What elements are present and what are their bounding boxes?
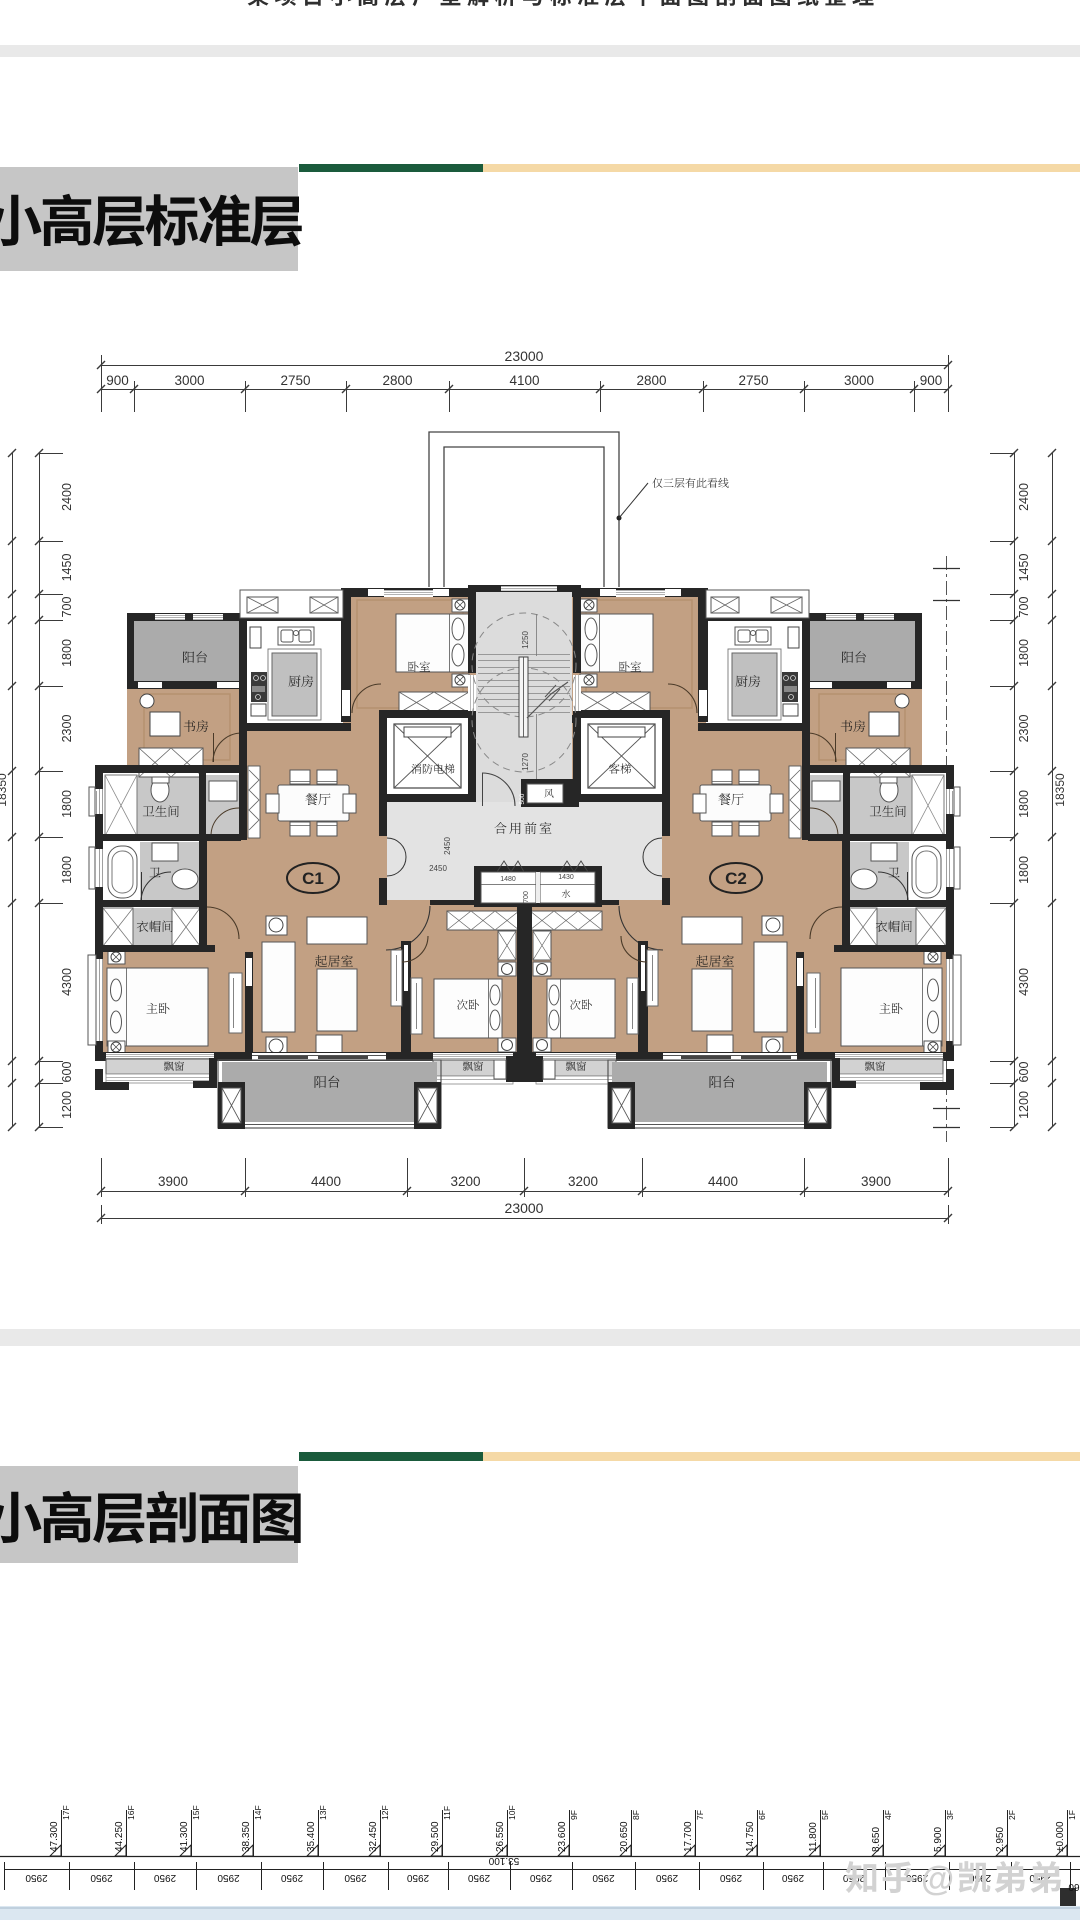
svg-text:47.300: 47.300: [49, 1821, 60, 1852]
svg-text:8.650: 8.650: [871, 1827, 882, 1852]
svg-text:3000: 3000: [174, 373, 204, 388]
svg-text:18350: 18350: [0, 773, 9, 807]
svg-text:2450: 2450: [429, 864, 447, 873]
svg-text:17.700: 17.700: [683, 1821, 694, 1852]
svg-text:2950: 2950: [217, 1872, 240, 1883]
svg-text:2950: 2950: [655, 1872, 678, 1883]
svg-text:38.350: 38.350: [241, 1821, 252, 1852]
svg-text:2450: 2450: [443, 837, 452, 855]
svg-text:29.500: 29.500: [430, 1821, 441, 1852]
svg-text:4F: 4F: [883, 1810, 893, 1820]
svg-text:2.950: 2.950: [995, 1827, 1006, 1852]
svg-text:3200: 3200: [568, 1174, 598, 1189]
svg-text:2950: 2950: [90, 1872, 113, 1883]
svg-text:2950: 2950: [25, 1872, 48, 1883]
svg-text:1430: 1430: [558, 874, 574, 881]
svg-text:2950: 2950: [592, 1872, 615, 1883]
svg-text:2950: 2950: [467, 1872, 490, 1883]
svg-text:41.300: 41.300: [179, 1821, 190, 1852]
svg-text:3000: 3000: [844, 373, 874, 388]
svg-text:2300: 2300: [60, 715, 74, 743]
svg-text:13F: 13F: [318, 1805, 328, 1820]
svg-text:3900: 3900: [861, 1174, 891, 1189]
svg-text:1270: 1270: [521, 753, 530, 771]
svg-text:@: @: [921, 1860, 954, 1898]
svg-text:9F: 9F: [569, 1810, 579, 1820]
svg-text:23000: 23000: [505, 348, 544, 364]
svg-text:26.550: 26.550: [495, 1821, 506, 1852]
svg-text:3200: 3200: [450, 1174, 480, 1189]
svg-text:1450: 1450: [60, 554, 74, 582]
svg-text:32.450: 32.450: [368, 1821, 379, 1852]
svg-text:5F: 5F: [820, 1810, 830, 1820]
svg-text:35.400: 35.400: [306, 1821, 317, 1852]
svg-text:1800: 1800: [1017, 639, 1031, 667]
svg-text:2800: 2800: [382, 373, 412, 388]
svg-text:5.900: 5.900: [933, 1827, 944, 1852]
svg-text:4400: 4400: [708, 1174, 738, 1189]
svg-text:14.750: 14.750: [745, 1821, 756, 1852]
svg-text:44.250: 44.250: [114, 1821, 125, 1852]
svg-text:18350: 18350: [1053, 773, 1067, 807]
svg-text:1450: 1450: [1017, 554, 1031, 582]
svg-text:2950: 2950: [781, 1872, 804, 1883]
svg-text:700: 700: [523, 891, 530, 903]
svg-text:11.800: 11.800: [808, 1822, 819, 1852]
svg-text:1250: 1250: [521, 631, 530, 649]
svg-text:2950: 2950: [280, 1872, 303, 1883]
svg-text:2800: 2800: [636, 373, 666, 388]
svg-text:1800: 1800: [1017, 856, 1031, 884]
svg-text:23000: 23000: [505, 1200, 544, 1216]
svg-text:1800: 1800: [60, 856, 74, 884]
svg-text:2F: 2F: [1007, 1810, 1017, 1820]
svg-text:2950: 2950: [153, 1872, 176, 1883]
svg-text:±0.000: ±0.000: [1055, 1821, 1066, 1852]
svg-text:700: 700: [60, 597, 74, 618]
svg-text:12F: 12F: [380, 1805, 390, 1820]
svg-text:2950: 2950: [406, 1872, 429, 1883]
svg-text:4400: 4400: [311, 1174, 341, 1189]
svg-text:10F: 10F: [507, 1805, 517, 1820]
svg-text:900: 900: [920, 373, 943, 388]
svg-text:8F: 8F: [631, 1810, 641, 1820]
svg-text:2400: 2400: [60, 483, 74, 511]
svg-text:2950: 2950: [529, 1872, 552, 1883]
svg-text:700: 700: [1017, 597, 1031, 618]
svg-text:2950: 2950: [719, 1872, 742, 1883]
svg-text:900: 900: [106, 373, 129, 388]
svg-text:16F: 16F: [126, 1805, 136, 1820]
svg-text:C1: C1: [302, 869, 324, 888]
svg-text:4300: 4300: [60, 968, 74, 996]
svg-text:17F: 17F: [61, 1805, 71, 1820]
svg-text:53.100: 53.100: [488, 1855, 519, 1866]
svg-text:2950: 2950: [344, 1872, 367, 1883]
svg-text:1800: 1800: [60, 790, 74, 818]
svg-text:23.600: 23.600: [557, 1821, 568, 1852]
svg-text:500: 500: [519, 793, 526, 804]
svg-text:2750: 2750: [738, 373, 768, 388]
svg-text:20.650: 20.650: [619, 1821, 630, 1852]
svg-text:C2: C2: [725, 869, 747, 888]
svg-text:1200: 1200: [1017, 1091, 1031, 1119]
svg-text:2300: 2300: [1017, 715, 1031, 743]
svg-text:11F: 11F: [442, 1806, 452, 1820]
svg-text:15F: 15F: [191, 1805, 201, 1820]
svg-text:2400: 2400: [1017, 483, 1031, 511]
svg-text:4100: 4100: [509, 373, 539, 388]
svg-text:2750: 2750: [280, 373, 310, 388]
svg-text:14F: 14F: [253, 1805, 263, 1820]
svg-text:1800: 1800: [1017, 790, 1031, 818]
svg-text:600: 600: [1017, 1062, 1031, 1083]
svg-text:600: 600: [60, 1062, 74, 1083]
svg-text:3900: 3900: [158, 1174, 188, 1189]
svg-text:1200: 1200: [60, 1091, 74, 1119]
svg-text:1800: 1800: [60, 639, 74, 667]
svg-text:3F: 3F: [945, 1810, 955, 1820]
svg-text:1480: 1480: [500, 876, 516, 883]
svg-text:6F: 6F: [757, 1810, 767, 1820]
svg-text:60: 60: [1068, 1881, 1080, 1892]
svg-text:4300: 4300: [1017, 968, 1031, 996]
svg-text:1F: 1F: [1067, 1810, 1077, 1820]
svg-text:7F: 7F: [695, 1810, 705, 1820]
